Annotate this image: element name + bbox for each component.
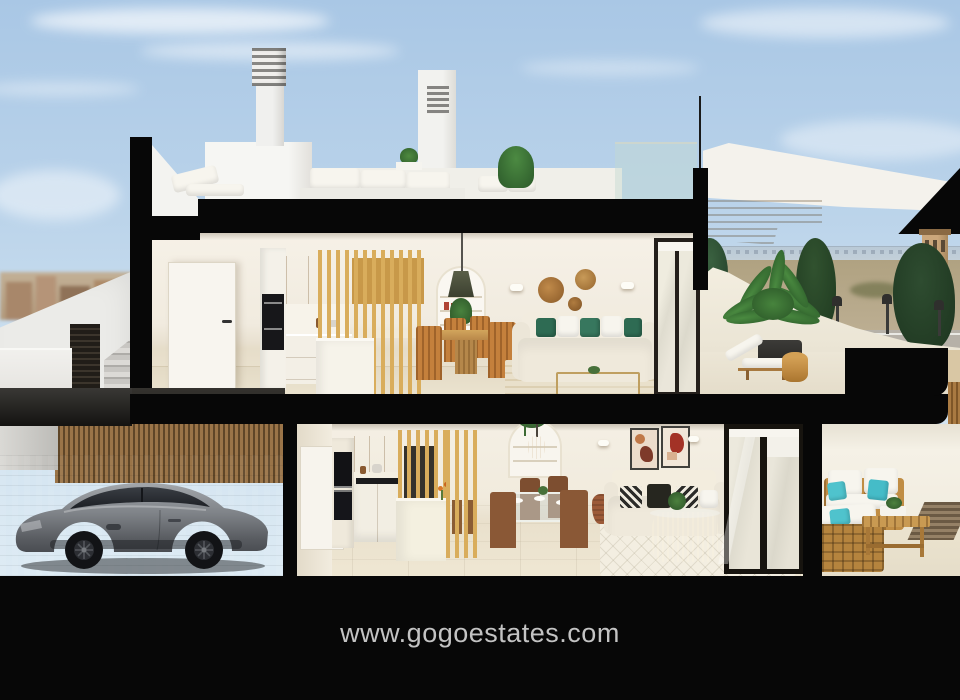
- wall-sconce: [621, 282, 634, 289]
- white-pillow: [557, 316, 579, 337]
- oven-handle: [264, 328, 282, 330]
- property-cutaway-render: www.gogoestates.com: [0, 0, 960, 700]
- cloud: [700, 8, 950, 38]
- watchtower-window: [941, 240, 945, 252]
- wire-pendant-lamp: [528, 436, 545, 459]
- wall-sconce: [510, 284, 523, 291]
- dining-chair-lower: [490, 492, 516, 548]
- watchtower-roof: [919, 229, 951, 235]
- sports-car: [10, 462, 276, 576]
- roof-palm-plant: [498, 146, 534, 188]
- roof-lounge-seat: [186, 184, 244, 196]
- oven-handle: [264, 302, 282, 304]
- cut-post-mid: [693, 168, 708, 290]
- street-lamp: [886, 300, 889, 334]
- sun-lounger-leg: [746, 370, 749, 380]
- rattan-coffee-table: [652, 512, 718, 562]
- website-url: www.gogoestates.com: [0, 618, 960, 649]
- roof-sofa-back: [310, 168, 360, 190]
- coffee-table-decor: [588, 366, 600, 374]
- roller-blind: [729, 429, 799, 437]
- green-pillow: [536, 318, 556, 337]
- kitchen-island: [316, 338, 374, 399]
- built-in-microwave: [334, 452, 352, 488]
- dining-table-pedestal: [455, 340, 477, 374]
- cloud: [30, 8, 330, 34]
- terrace-side-table: [782, 352, 808, 382]
- car-front-wheel: [65, 531, 103, 569]
- niche-decor-red: [444, 302, 449, 310]
- street-lamp-head: [882, 294, 892, 304]
- roof-sofa-back: [360, 170, 406, 190]
- place-setting: [534, 496, 545, 501]
- lower-sliding-glass-doors: [724, 424, 804, 574]
- hanging-plant-strand: [524, 424, 526, 436]
- white-pillow: [700, 490, 718, 508]
- patio-plant: [886, 497, 902, 509]
- abstract-artwork: [661, 426, 690, 468]
- cut-step-left: [152, 216, 200, 240]
- lower-kitchen-island: [396, 498, 446, 561]
- counter-item: [372, 464, 382, 473]
- street-lamp: [938, 306, 941, 336]
- woven-wall-basket: [575, 269, 596, 290]
- patio-sofa-timber-body: [812, 524, 884, 572]
- coffee-table-plant: [668, 492, 686, 510]
- woven-wall-basket: [568, 297, 582, 311]
- table-centerpiece: [538, 486, 548, 495]
- railing-post: [699, 96, 701, 172]
- patio-bench-leg: [866, 527, 870, 555]
- island-flower-stem: [441, 490, 443, 500]
- glass-panel: [658, 242, 675, 392]
- patio-bench-rail: [866, 544, 924, 548]
- cloud: [520, 60, 700, 76]
- roof-glass-railing: [615, 142, 697, 204]
- neighbour-wall-strip: [948, 350, 960, 384]
- dining-chair-lower: [560, 490, 588, 548]
- niche-shelf: [513, 460, 557, 462]
- art-shape: [670, 433, 684, 453]
- cut-divider-patio: [803, 394, 822, 578]
- black-pillow: [647, 484, 671, 508]
- roller-blind: [658, 242, 696, 251]
- zigzag-pillow: [620, 486, 642, 508]
- street-lamp-head: [934, 300, 944, 310]
- woven-wall-basket: [538, 277, 564, 303]
- counter-item: [360, 466, 366, 474]
- palm-crown: [752, 288, 794, 320]
- art-shape: [640, 446, 653, 462]
- teal-pillow: [867, 479, 889, 501]
- town-building: [6, 282, 32, 320]
- upper-interior-door: [168, 262, 236, 390]
- neighbour-timber-strip: [948, 382, 960, 424]
- patio-bench-leg: [920, 527, 924, 557]
- door-handle: [222, 320, 232, 323]
- green-pillow: [580, 318, 600, 337]
- art-shape: [667, 452, 677, 460]
- car-rear-wheel: [185, 531, 223, 569]
- art-shape: [635, 434, 645, 444]
- dining-chair: [416, 326, 442, 380]
- cut-divider-garage: [283, 394, 297, 578]
- chimney-louver-cap: [427, 86, 449, 114]
- roof-plant-table: [396, 162, 422, 170]
- street-lamp-head: [832, 296, 842, 306]
- understair-shadow: [0, 388, 132, 426]
- pendant-cord: [461, 233, 463, 273]
- patio-coffee-bench-top: [862, 516, 930, 527]
- chimney-shaft: [256, 84, 284, 146]
- cut-band-top: [198, 199, 700, 233]
- cut-band-right: [845, 348, 948, 396]
- teal-pillow: [827, 481, 847, 501]
- green-pillow: [624, 318, 642, 337]
- white-pillow: [601, 316, 623, 337]
- sun-lounger-seat: [742, 358, 786, 368]
- wall-sconce: [598, 440, 609, 446]
- lower-base-cabinets: [354, 484, 402, 542]
- louvre-vent-panel: [70, 324, 100, 388]
- cut-post-left: [130, 137, 152, 424]
- abstract-artwork: [630, 428, 659, 470]
- chimney-louver-cap: [252, 48, 286, 86]
- coffee-table-glass-top: [650, 508, 720, 518]
- upper-ceiling-shadow: [152, 233, 700, 240]
- built-in-oven: [262, 294, 284, 350]
- cut-band-mid: [130, 394, 948, 424]
- timber-slat-partition-lower: [446, 430, 482, 558]
- built-in-oven: [334, 490, 352, 520]
- wall-sconce: [688, 436, 699, 442]
